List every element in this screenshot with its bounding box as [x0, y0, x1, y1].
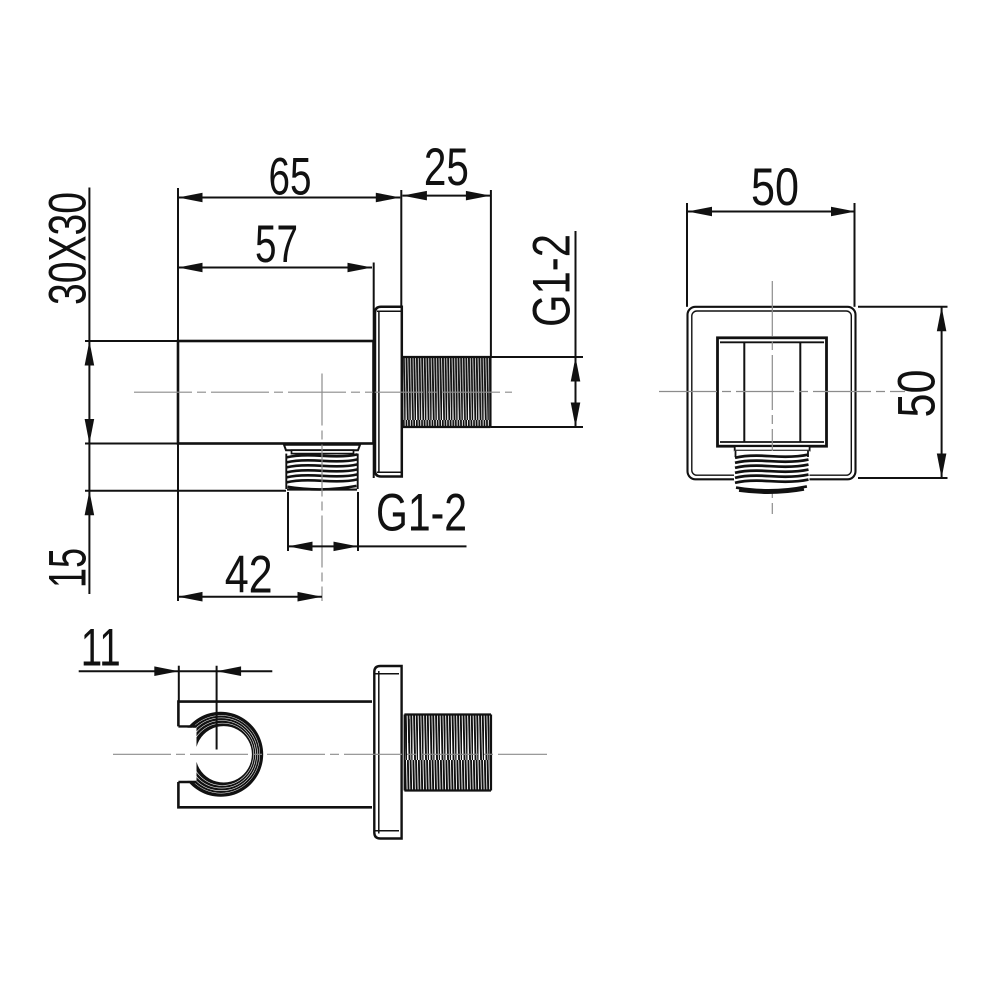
svg-text:G1-2: G1-2	[523, 234, 582, 327]
svg-text:50: 50	[751, 158, 799, 217]
svg-text:65: 65	[269, 148, 312, 207]
svg-text:30X30: 30X30	[39, 192, 98, 305]
svg-text:42: 42	[225, 546, 273, 605]
svg-text:57: 57	[255, 215, 298, 274]
svg-text:25: 25	[424, 138, 469, 197]
svg-text:11: 11	[81, 619, 121, 678]
svg-text:15: 15	[39, 548, 98, 588]
svg-text:G1-2: G1-2	[376, 484, 467, 543]
svg-text:50: 50	[888, 370, 947, 418]
